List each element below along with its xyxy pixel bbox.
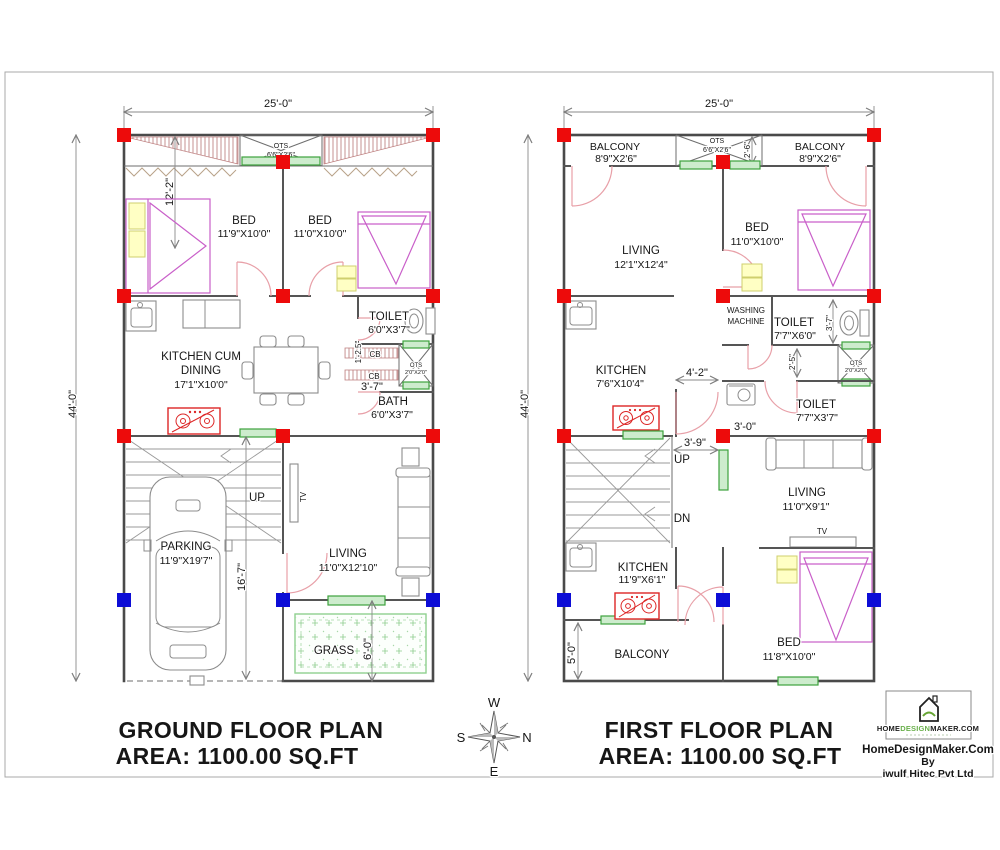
ff-living-top-size: 12'1"X12'4": [614, 259, 668, 271]
ff-area: AREA: 1100.00 SQ.FT: [599, 743, 842, 769]
gf-area: AREA: 1100.00 SQ.FT: [116, 743, 359, 769]
ff-dim-2-5: 2'-5": [788, 354, 797, 370]
ff-balcony-right-label: BALCONY: [795, 141, 845, 153]
gf-parking-size: 11'9"X19'7": [160, 555, 213, 567]
window-icon: [719, 450, 728, 490]
gf-bed-left-size: 11'9"X10'0": [218, 228, 271, 240]
sink-icon: [126, 301, 156, 331]
grass-patch: [295, 614, 426, 673]
gf-toilet-size: 6'0"X3'7": [368, 324, 410, 336]
sink-icon: [566, 301, 596, 329]
gf-bed-left-label: BED: [232, 215, 256, 227]
ff-ots2-size: 2'0"X2'0": [845, 368, 867, 374]
gf-ots-label: OTS: [274, 143, 289, 150]
tv-cabinet-icon: [790, 537, 856, 547]
wc-icon: [840, 310, 869, 336]
gf-kitchen-line1: KITCHEN CUM: [161, 351, 241, 363]
ff-toilet1-size: 7'7"X6'0": [774, 330, 816, 342]
compass-rose-icon: W E S N: [457, 695, 532, 779]
window-icon: [328, 596, 385, 605]
ff-ots2-label: OTS: [850, 361, 862, 367]
gf-grass-label: GRASS: [314, 645, 355, 657]
gf-bath-size: 6'0"X3'7": [371, 409, 413, 421]
ff-title: FIRST FLOOR PLAN: [605, 717, 834, 743]
ff-dim-3-0: 3'-0": [734, 421, 756, 433]
gf-parking-label: PARKING: [161, 541, 212, 553]
bed-icon: [777, 552, 872, 642]
logo-brand-maker: MAKER.COM: [930, 724, 979, 733]
counter-icon: [183, 300, 240, 328]
ff-dn-label: DN: [674, 513, 691, 525]
compass-s: S: [457, 730, 466, 745]
gf-ots2-size: 2'0"X2'0": [405, 370, 427, 376]
gf-dim-height: 44'-0": [67, 390, 79, 418]
window-icon: [730, 161, 760, 169]
gf-dim-width: 25'-0": [264, 98, 292, 110]
sofa-icon: [766, 438, 872, 470]
ff-washing-line1: WASHING: [727, 306, 765, 315]
ff-living-bottom-label: LIVING: [788, 487, 826, 499]
logo-brand-design: DESIGN: [900, 724, 930, 733]
gf-bed-right-size: 11'0"X10'0": [294, 228, 347, 240]
ff-living-bottom-size: 11'0"X9'1": [783, 501, 830, 513]
window-icon: [680, 161, 712, 169]
sink-icon: [566, 543, 596, 571]
ff-toilet2-label: TOILET: [796, 399, 836, 411]
ff-ots-size: 6'6"X2'6": [703, 147, 731, 154]
compass-n: N: [522, 730, 531, 745]
sofa-icon: [396, 448, 430, 596]
ff-dim-4-2: 4'-2": [686, 367, 708, 379]
ff-ots-dim: 2'-6": [743, 142, 752, 158]
ff-toilet1-label: TOILET: [774, 317, 814, 329]
dining-table-icon: [242, 336, 330, 405]
ff-up-label: UP: [674, 454, 690, 466]
logo-line1: HomeDesignMaker.Com: [862, 744, 994, 756]
ff-toilet2-size: 7'7"X3'7": [796, 412, 838, 424]
tv-icon: [290, 464, 298, 522]
gf-bed-dim: 12'-2": [164, 178, 176, 206]
gf-kitchen-size: 17'1"X10'0": [174, 379, 228, 391]
ff-kitchen-bottom-label: KITCHEN: [618, 562, 668, 574]
washing-machine-icon: [727, 384, 755, 405]
ff-kitchen-top-label: KITCHEN: [596, 365, 646, 377]
ff-ots-label: OTS: [710, 138, 725, 145]
gf-grass-dim: 6'-0": [362, 638, 374, 660]
logo-line3: iwulf Hitec Pvt Ltd: [882, 768, 973, 780]
gf-cb2: CB: [368, 372, 379, 381]
bed-icon: [126, 199, 210, 293]
gf-up-label: UP: [249, 492, 265, 504]
ff-balcony-left-size: 8'9"X2'6": [595, 153, 637, 165]
ff-dim-width: 25'-0": [705, 98, 733, 110]
ff-bed-bottom-size: 11'8"X10'0": [763, 651, 816, 663]
ff-dim-height: 44'-0": [519, 390, 531, 418]
ff-balcony-bottom-label: BALCONY: [615, 649, 670, 661]
ground-floor-plan: 25'-0" 44'-0" OTS 6'6"X2'6" 12'-2": [67, 98, 440, 685]
ff-dim-5-0: 5'-0": [566, 642, 578, 664]
floor-plan-canvas: 25'-0" 44'-0" OTS 6'6"X2'6" 12'-2": [0, 0, 1000, 850]
gf-bed-right-label: BED: [308, 215, 332, 227]
logo-brand-home: HOME: [877, 724, 900, 733]
gf-kitchen-line2: DINING: [181, 365, 221, 377]
logo-block: HOMEDESIGNMAKER.COM HomeDesignMaker.Com …: [862, 691, 994, 780]
ff-dim-3-7: 3'-7": [825, 315, 834, 331]
ff-bed-bottom-label: BED: [777, 637, 801, 649]
ff-balcony-left-label: BALCONY: [590, 141, 640, 153]
compass-w: W: [488, 695, 501, 710]
stove-icon: [615, 593, 659, 619]
gf-cb-dim: 1'-2.5": [354, 341, 363, 364]
floor-plan-page: 25'-0" 44'-0" OTS 6'6"X2'6" 12'-2": [0, 0, 1000, 850]
logo-line2: By: [921, 756, 935, 768]
gf-cb1: CB: [369, 350, 380, 359]
ff-bed-top-size: 11'0"X10'0": [731, 236, 784, 248]
ff-living-top-label: LIVING: [622, 245, 660, 257]
gf-bath-label: BATH: [378, 396, 408, 408]
ff-bed-top-label: BED: [745, 222, 769, 234]
gf-living-size: 11'0"X12'10": [319, 562, 378, 574]
ff-washing-line2: MACHINE: [728, 317, 765, 326]
stove-icon: [613, 406, 659, 430]
ff-kitchen-top-size: 7'6"X10'4": [596, 378, 644, 390]
compass-e: E: [490, 764, 499, 779]
ff-balcony-right-size: 8'9"X2'6": [799, 153, 841, 165]
sheet-border: [5, 72, 993, 777]
logo-brand: HOMEDESIGNMAKER.COM: [877, 724, 979, 733]
ff-kitchen-bottom-size: 11'9"X6'1": [619, 574, 666, 586]
gf-living-label: LIVING: [329, 548, 367, 560]
car-icon: [144, 477, 232, 670]
gf-title: GROUND FLOOR PLAN: [119, 717, 384, 743]
ff-dim-3-9: 3'-9": [684, 437, 706, 449]
stove-icon: [168, 408, 220, 434]
window-icon: [778, 677, 818, 685]
gf-tv-label: TV: [299, 491, 308, 502]
gf-toilet-label: TOILET: [369, 311, 409, 323]
bed-icon: [337, 212, 430, 291]
window-icon: [623, 431, 663, 439]
gf-dim-16-7: 16'-7": [236, 563, 248, 591]
window-icon: [240, 429, 276, 437]
ff-tv-label: TV: [817, 527, 828, 536]
staircase-icon: [566, 438, 670, 543]
gf-ots2-label: OTS: [410, 363, 422, 369]
first-floor-plan: 25'-0" 44'-0" OTS 6'6"X2'6" 2'-6" BALCON…: [519, 98, 881, 685]
